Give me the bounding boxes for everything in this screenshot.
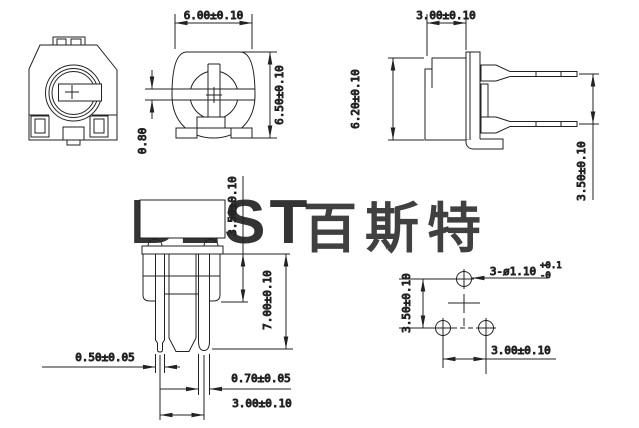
lower-pin xyxy=(481,117,577,133)
ext-line xyxy=(160,355,204,420)
view-perspective xyxy=(29,37,117,145)
top-tab xyxy=(53,37,85,45)
center-mark xyxy=(448,294,480,326)
hole-note-tol-plus: +0.1 xyxy=(540,261,562,271)
cover-plate xyxy=(466,52,480,140)
dim-side-pin-spacing-label: 3.50±0.10 xyxy=(575,141,588,201)
right-foot xyxy=(231,128,252,138)
hole-note-tol-minus: -0 xyxy=(540,271,551,281)
body-outline xyxy=(140,200,225,238)
view-side: 3.00±0.10 6.20±0.10 3.50±0.10 xyxy=(349,9,599,201)
dim-front-height-label: 6.50±0.10 xyxy=(273,65,286,125)
dim-bottom-pin-width-large-label: 0.70±0.05 xyxy=(231,372,291,385)
dim-holes-horizontal-label: 3.00±0.10 xyxy=(491,344,551,357)
dim-bottom-shoulder-label: 3.50±0.10 xyxy=(226,176,239,236)
center-pin xyxy=(169,254,196,352)
dim-front-width-label: 6.00±0.10 xyxy=(184,9,244,22)
screw-slot xyxy=(59,84,102,101)
dim-bottom-pin-length-label: 7.00±0.10 xyxy=(261,270,274,330)
left-shoulder xyxy=(143,254,156,301)
center-lug xyxy=(63,127,84,140)
right-shoulder xyxy=(210,254,221,301)
center-pin-stub xyxy=(67,140,80,145)
right-pin xyxy=(199,254,210,351)
hole-note-label: 3-ø1.10 xyxy=(490,265,536,278)
left-pin xyxy=(156,254,165,352)
dim-front-slot-label: 0.80 xyxy=(136,128,149,155)
marker-window xyxy=(197,117,225,128)
technical-drawing-canvas: BEST 百斯特 6.00±0.10 xyxy=(0,0,639,428)
left-foot xyxy=(176,128,197,138)
dim-holes-vertical-label: 3.50±0.10 xyxy=(400,273,413,333)
base-plate xyxy=(142,246,223,254)
upper-pin xyxy=(481,65,577,81)
pin-base xyxy=(481,84,488,118)
mold-line xyxy=(143,276,220,294)
watermark-cjk-text: 百斯特 xyxy=(303,197,489,260)
dim-side-height-label: 6.20±0.10 xyxy=(349,69,362,129)
hole-cross xyxy=(454,269,474,289)
view-holes: 3.50±0.10 3.00±0.10 3-ø1.10 +0.1 -0 xyxy=(399,261,562,374)
dim-bottom-pin-width-small-label: 0.50±0.05 xyxy=(75,351,135,364)
body-outline xyxy=(425,58,466,140)
bottom-foot xyxy=(466,139,503,149)
dim-side-depth-label: 3.00±0.10 xyxy=(416,9,476,22)
view-front: 6.00±0.10 6.50±0.10 0.80 xyxy=(136,9,286,154)
drawing-svg: BEST 百斯特 6.00±0.10 xyxy=(0,0,639,428)
dim-bottom-pin-pitch-label: 3.00±0.10 xyxy=(232,397,292,410)
